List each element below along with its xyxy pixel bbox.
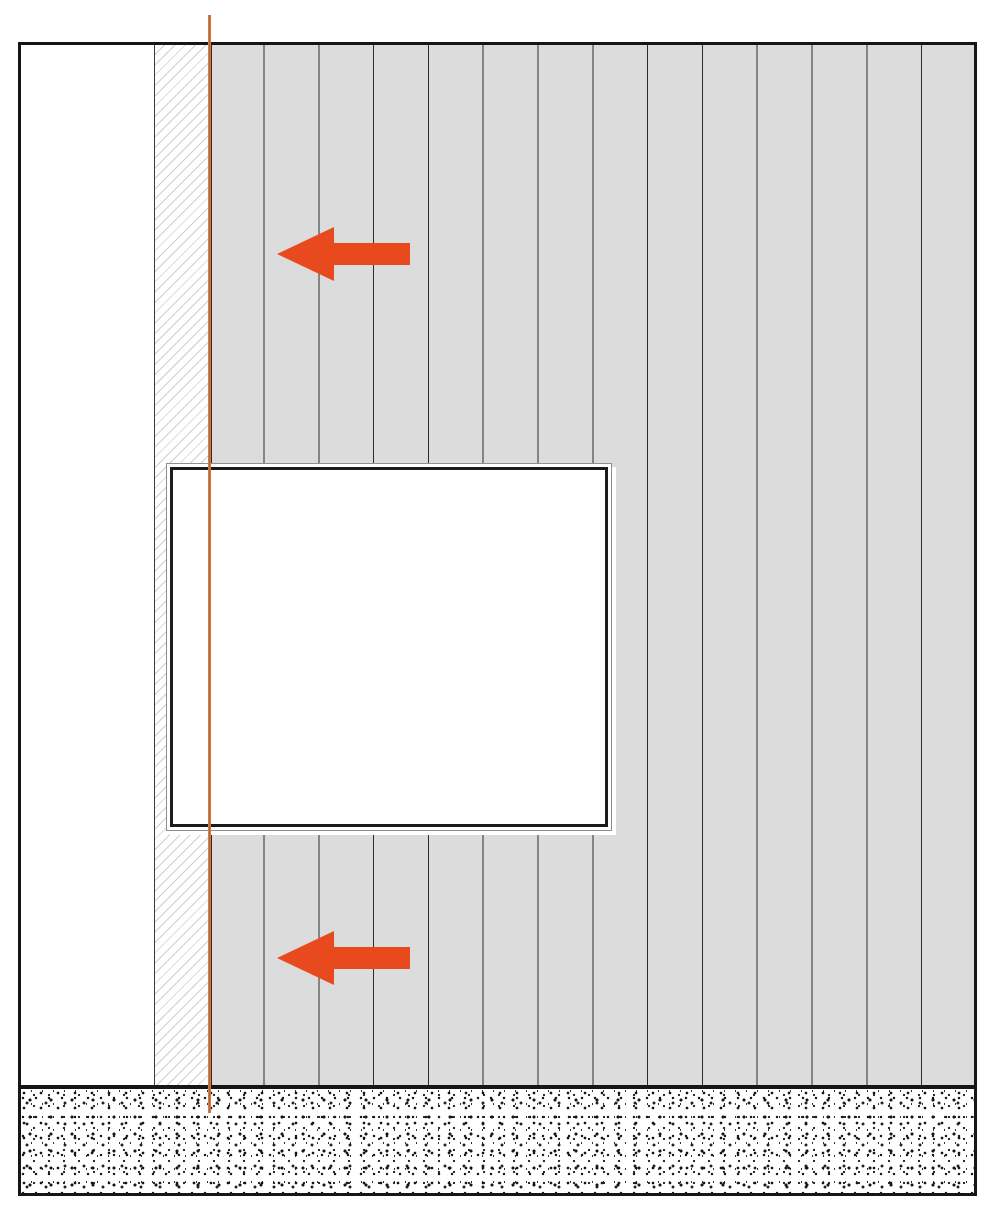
interior-white-strip xyxy=(21,45,155,1085)
left-arrow-icon xyxy=(277,227,410,281)
direction-arrow-upper xyxy=(277,227,410,281)
window-opening xyxy=(166,463,612,831)
orange-reference-line xyxy=(208,15,211,1113)
ground-plinth-band xyxy=(21,1085,974,1193)
window-frame xyxy=(170,467,608,827)
left-arrow-icon xyxy=(277,931,410,985)
diagram-canvas xyxy=(0,0,992,1215)
direction-arrow-lower xyxy=(277,931,410,985)
